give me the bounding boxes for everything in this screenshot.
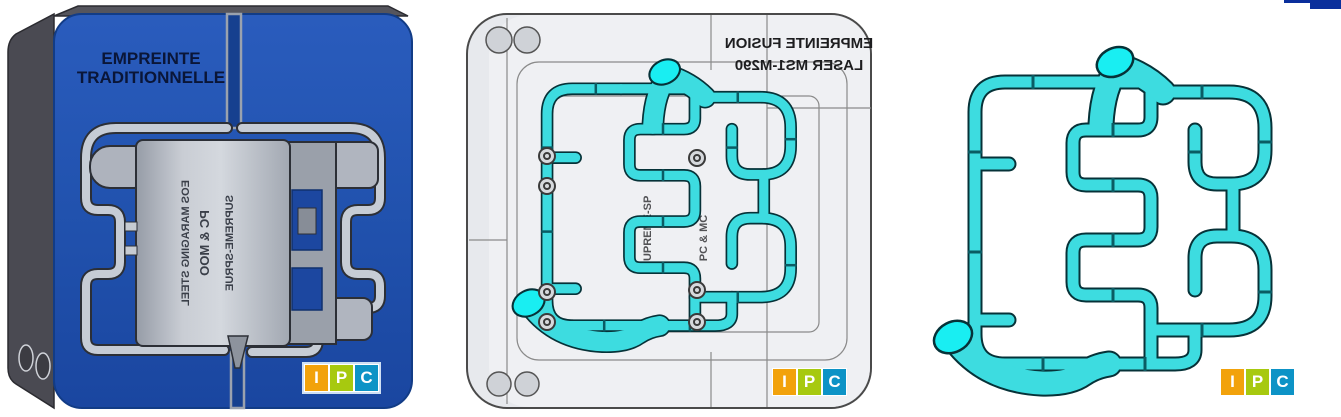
insert-engraving-partial-2: PC & MC: [698, 215, 710, 262]
title-line-2: TRADITIONNELLE: [77, 68, 225, 87]
insert-cylinder: [136, 140, 290, 346]
slide-corner-bar-thin: [1284, 0, 1310, 3]
cooling-channels-drawing: [910, 0, 1315, 414]
insert-engraving-line-2: PC & MOO: [197, 210, 212, 276]
side-hole: [36, 353, 50, 379]
insert-engraving-line-3: SUPREME-SPRUE: [224, 195, 236, 291]
laser-cavity-drawing: EMPREINTE FUSION LASER MS1-M290 SUPREME-…: [455, 0, 887, 414]
traditional-cavity-drawing: EMPREINTE TRADITIONNELLE: [6, 0, 418, 414]
insert-engraving-partial-1: SUPREME-SP: [642, 196, 654, 269]
ipc-letter-i: I: [305, 365, 328, 391]
title-line-1: EMPREINTE FUSION: [725, 35, 873, 52]
ipc-logo: I P C: [1220, 368, 1295, 396]
ipc-logo: I P C: [304, 364, 379, 392]
ipc-letter-i: I: [1221, 369, 1244, 395]
ipc-letter-p: P: [330, 365, 353, 391]
insert-engraving-line-1: EOS MARAGING STEEL: [180, 180, 192, 306]
panel-laser-fusion-cavity: EMPREINTE FUSION LASER MS1-M290 SUPREME-…: [455, 0, 887, 417]
cooling-channel-network: [928, 41, 1272, 383]
insert-cutout: [292, 268, 322, 310]
panel-cooling-channels: I P C: [910, 0, 1320, 417]
slide-corner-bar: [1310, 0, 1341, 9]
panel-traditional-cavity: EMPREINTE TRADITIONNELLE: [6, 0, 421, 417]
title-line-2: LASER MS1-M290: [735, 57, 863, 74]
insert-pin: [125, 222, 137, 231]
sprue-slot-top: [227, 14, 241, 128]
ipc-letter-c: C: [355, 365, 378, 391]
side-hole: [19, 345, 33, 371]
ipc-letter-c: C: [823, 369, 846, 395]
ipc-letter-p: P: [1246, 369, 1269, 395]
ipc-letter-p: P: [798, 369, 821, 395]
ipc-logo: I P C: [772, 368, 847, 396]
slide-figure: EMPREINTE TRADITIONNELLE: [0, 0, 1341, 417]
title-line-1: EMPREINTE: [101, 49, 200, 68]
insert-pin: [125, 246, 137, 255]
insert-step: [298, 208, 316, 234]
ipc-letter-i: I: [773, 369, 796, 395]
ipc-letter-c: C: [1271, 369, 1294, 395]
